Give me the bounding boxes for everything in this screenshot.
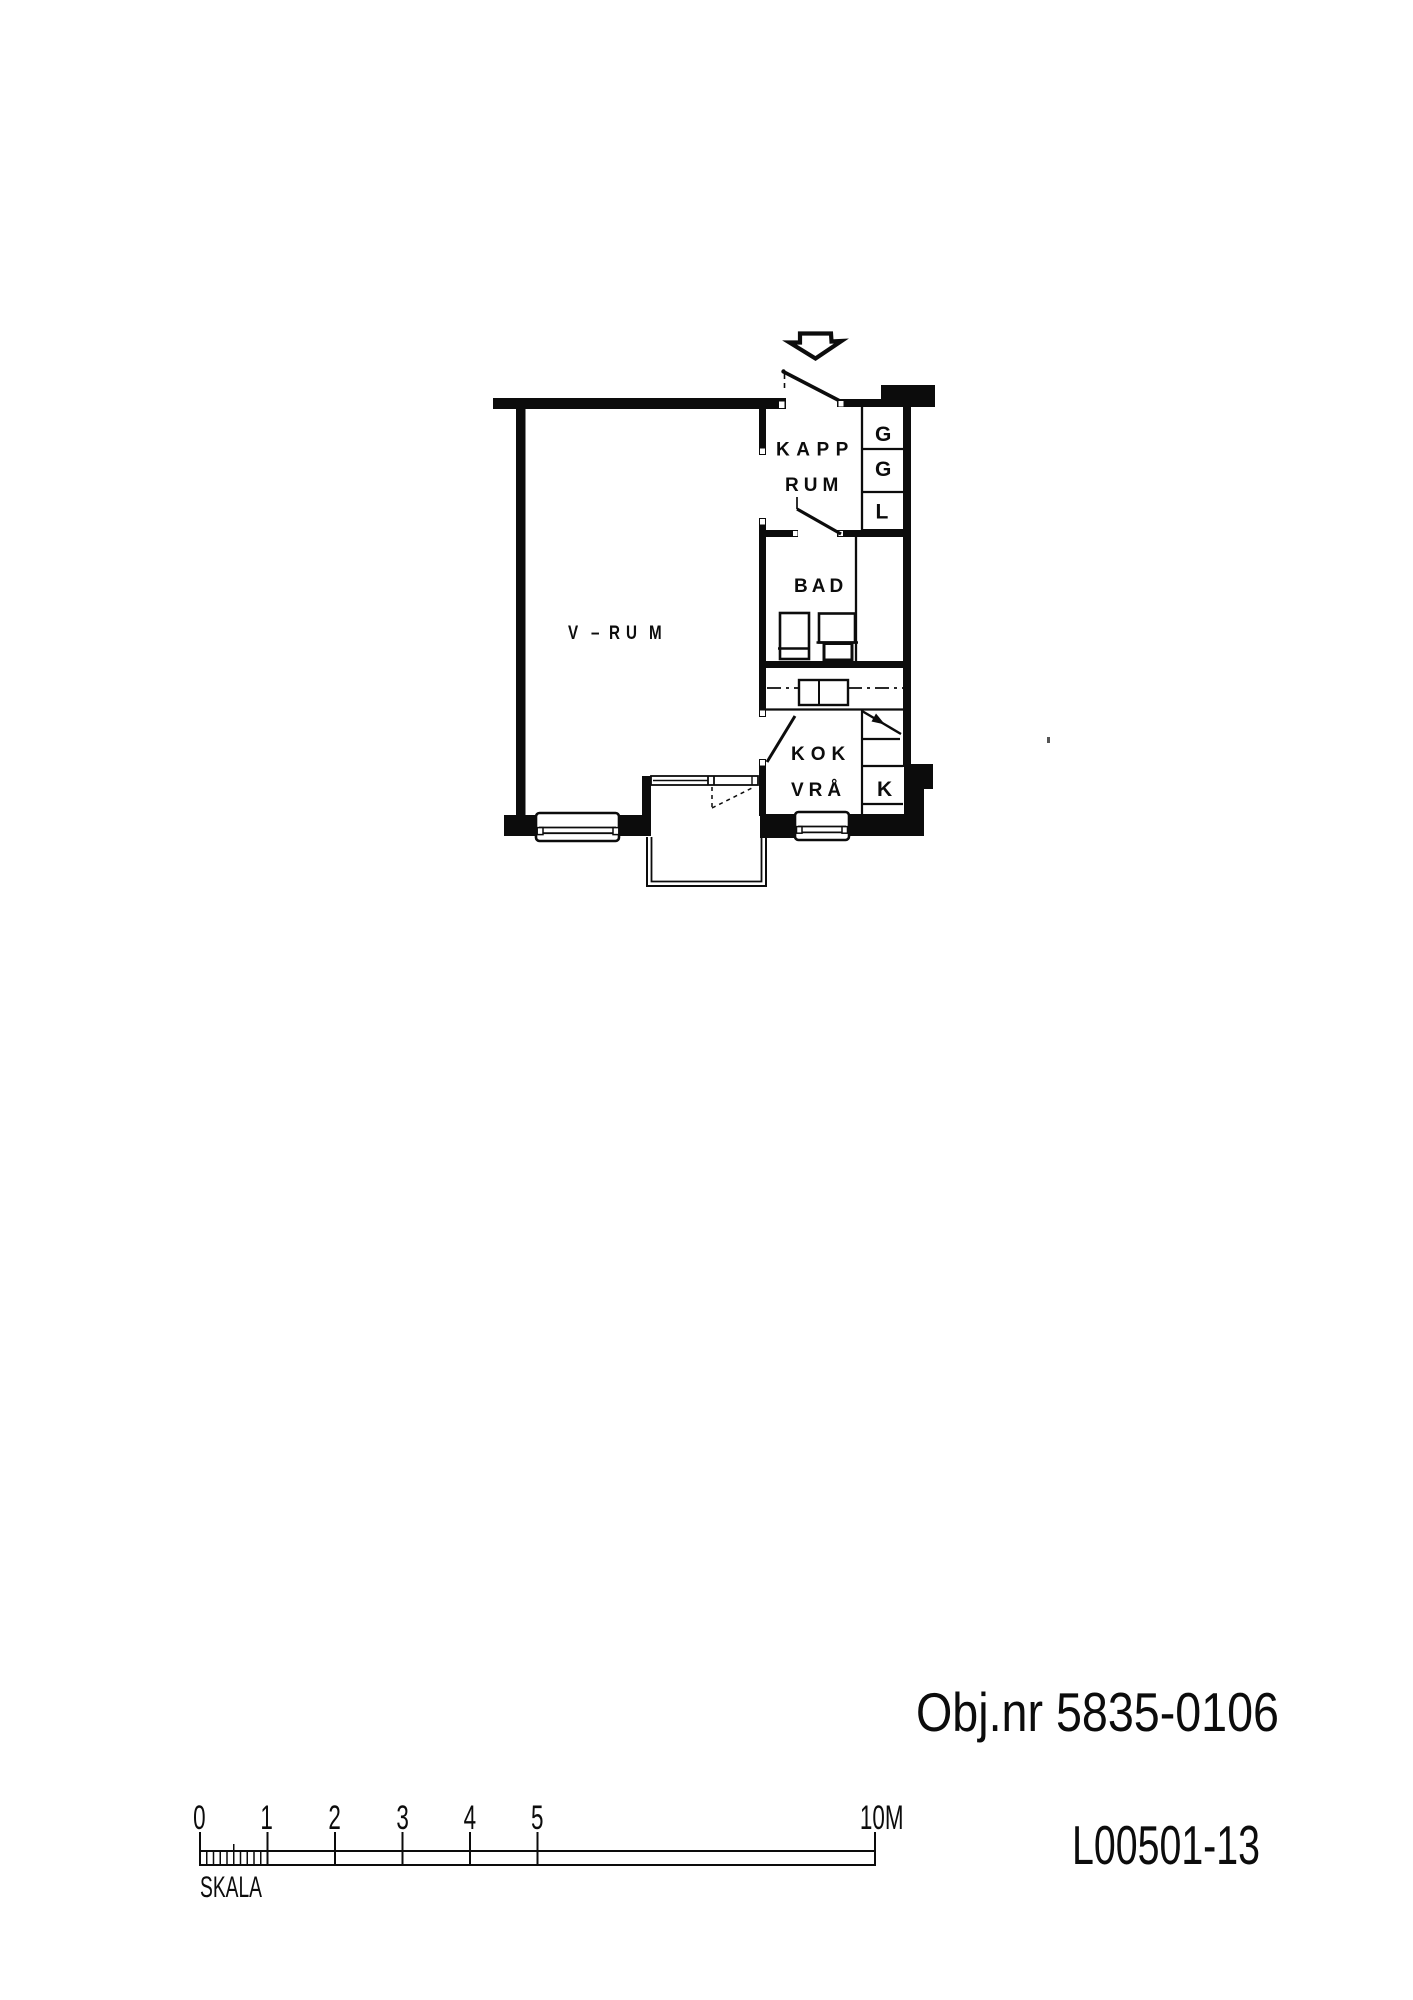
svg-text:G: G bbox=[875, 423, 891, 446]
svg-text:2: 2 bbox=[328, 1799, 340, 1837]
svg-text:3: 3 bbox=[396, 1799, 408, 1837]
svg-text:Obj.nr 5835-0106: Obj.nr 5835-0106 bbox=[916, 1681, 1279, 1743]
svg-text:RUM: RUM bbox=[785, 475, 843, 496]
svg-text:VRÅ: VRÅ bbox=[791, 780, 846, 801]
svg-text:10M: 10M bbox=[860, 1799, 904, 1837]
svg-text:L00501-13: L00501-13 bbox=[1072, 1814, 1260, 1876]
svg-text:1: 1 bbox=[260, 1799, 272, 1837]
svg-text:L: L bbox=[876, 501, 889, 524]
svg-text:KAPP: KAPP bbox=[776, 440, 855, 461]
svg-text:KOK: KOK bbox=[791, 744, 851, 765]
svg-text:SKALA: SKALA bbox=[200, 1871, 262, 1904]
svg-text:0: 0 bbox=[193, 1799, 205, 1837]
svg-text:4: 4 bbox=[464, 1799, 476, 1837]
svg-text:5: 5 bbox=[531, 1799, 543, 1837]
svg-text:K: K bbox=[877, 778, 892, 801]
svg-text:BAD: BAD bbox=[794, 576, 847, 597]
svg-text:G: G bbox=[875, 458, 891, 481]
